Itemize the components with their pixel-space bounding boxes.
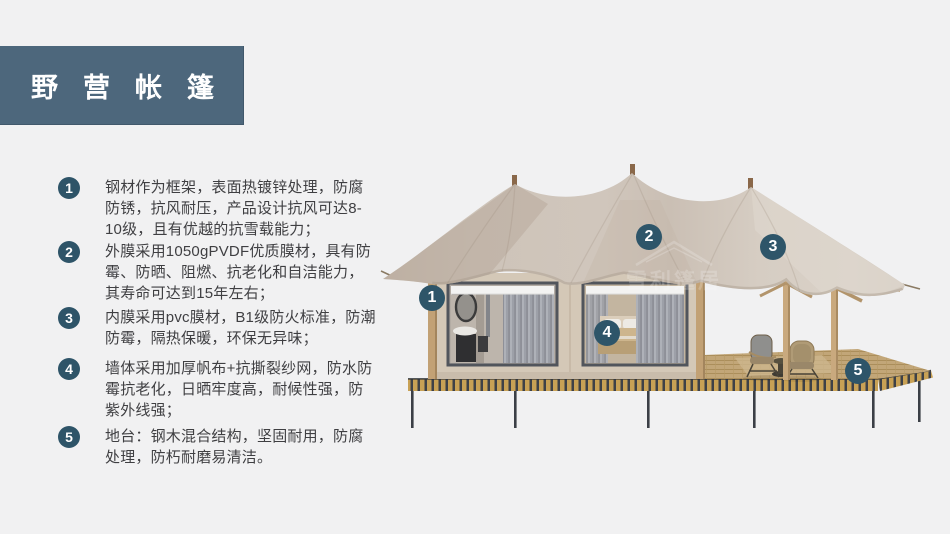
feature-text: 墙体采用加厚帆布+抗撕裂纱网，防水防霉抗老化，日晒牢度高，耐候性强，防紫外线强； bbox=[105, 358, 377, 421]
feature-number-badge: 5 bbox=[58, 426, 80, 448]
watermark-text: 雪利篷居 bbox=[626, 269, 722, 293]
patio-deck bbox=[703, 349, 931, 379]
feature-text: 内膜采用pvc膜材，B1级防火标准，防潮防霉，隔热保暖，环保无异味； bbox=[105, 307, 377, 349]
feature-text: 钢材作为框架，表面热镀锌处理，防腐防锈，抗风耐压，产品设计抗风可达8-10级，且… bbox=[105, 177, 377, 240]
callout-badge-2: 2 bbox=[636, 224, 662, 250]
callout-badge-3: 3 bbox=[760, 234, 786, 260]
page-title: 野营帐篷 bbox=[0, 66, 239, 105]
feature-item-2: 2 外膜采用1050gPVDF优质膜材，具有防霉、防晒、阻燃、抗老化和自洁能力，… bbox=[58, 241, 388, 304]
callout-badge-1: 1 bbox=[419, 285, 445, 311]
callout-badge-4: 4 bbox=[594, 320, 620, 346]
sink bbox=[453, 327, 477, 336]
feature-number-badge: 1 bbox=[58, 177, 80, 199]
feature-number-badge: 2 bbox=[58, 241, 80, 263]
tent-figure: 雪利篷居 bbox=[380, 150, 950, 440]
feature-item-1: 1 钢材作为框架，表面热镀锌处理，防腐防锈，抗风耐压，产品设计抗风可达8-10级… bbox=[58, 177, 388, 240]
tent-illustration: 雪利篷居 bbox=[380, 150, 950, 440]
feature-item-4: 4 墙体采用加厚帆布+抗撕裂纱网，防水防霉抗老化，日晒牢度高，耐候性强，防紫外线… bbox=[58, 358, 388, 421]
mirror bbox=[456, 293, 476, 321]
feature-text: 地台：钢木混合结构，坚固耐用，防腐处理，防朽耐磨易清洁。 bbox=[105, 426, 377, 468]
callout-badge-5: 5 bbox=[845, 358, 871, 384]
feature-number-badge: 4 bbox=[58, 358, 80, 380]
feature-number-badge: 3 bbox=[58, 307, 80, 329]
curtain bbox=[636, 288, 684, 363]
slide: 野营帐篷 1 钢材作为框架，表面热镀锌处理，防腐防锈，抗风耐压，产品设计抗风可达… bbox=[0, 0, 950, 534]
feature-item-5: 5 地台：钢木混合结构，坚固耐用，防腐处理，防朽耐磨易清洁。 bbox=[58, 426, 388, 468]
feature-text: 外膜采用1050gPVDF优质膜材，具有防霉、防晒、阻燃、抗老化和自洁能力，其寿… bbox=[105, 241, 377, 304]
feature-item-3: 3 内膜采用pvc膜材，B1级防火标准，防潮防霉，隔热保暖，环保无异味； bbox=[58, 307, 388, 349]
left-window-bathroom bbox=[448, 283, 557, 365]
curtain bbox=[503, 292, 554, 363]
page-title-block: 野营帐篷 bbox=[0, 46, 244, 125]
vanity-cabinet bbox=[456, 334, 476, 362]
